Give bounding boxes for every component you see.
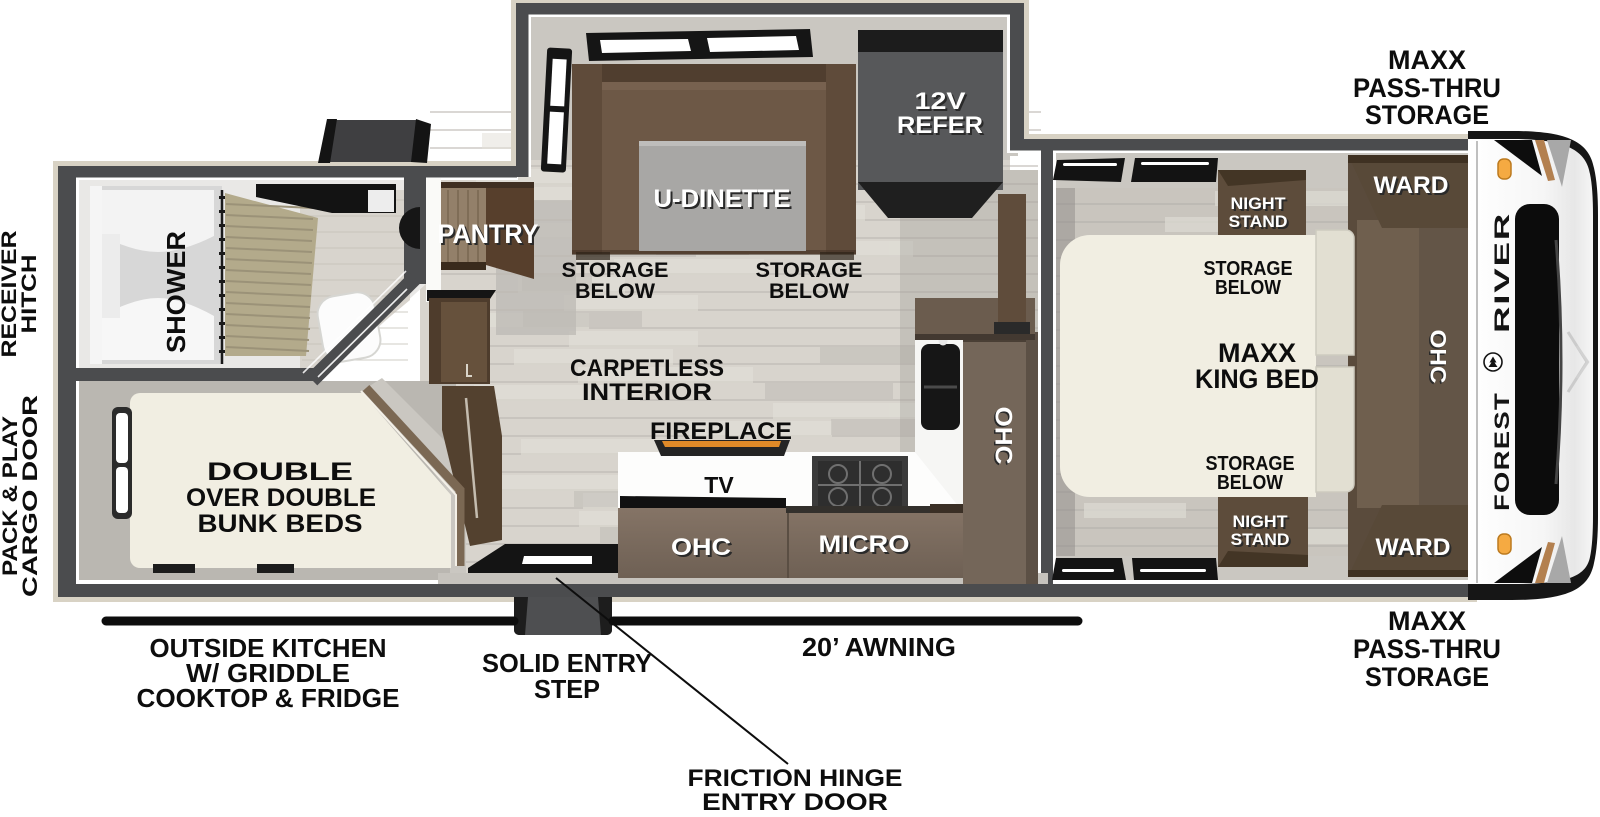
svg-text:20’ AWNING: 20’ AWNING <box>802 632 956 662</box>
svg-text:PASS-THRU: PASS-THRU <box>1353 73 1501 103</box>
svg-text:COOKTOP & FRIDGE: COOKTOP & FRIDGE <box>137 683 400 713</box>
svg-text:FOREST: FOREST <box>1491 392 1514 511</box>
svg-text:OHC: OHC <box>1426 330 1451 384</box>
svg-text:U-DINETTE: U-DINETTE <box>654 185 791 213</box>
svg-text:WARD: WARD <box>1376 534 1451 561</box>
svg-text:STORAGE: STORAGE <box>1365 100 1489 130</box>
svg-text:STAND: STAND <box>1231 530 1290 549</box>
svg-text:BUNK BEDS: BUNK BEDS <box>198 510 363 538</box>
svg-text:OHC: OHC <box>671 534 731 561</box>
svg-text:FIREPLACE: FIREPLACE <box>650 418 792 445</box>
svg-text:REFER: REFER <box>897 112 983 139</box>
svg-text:INTERIOR: INTERIOR <box>582 379 712 406</box>
svg-text:KING BED: KING BED <box>1195 364 1319 394</box>
svg-text:STORAGE: STORAGE <box>1365 662 1489 692</box>
svg-text:BELOW: BELOW <box>769 279 850 303</box>
svg-text:TV: TV <box>704 472 734 498</box>
svg-text:HITCH: HITCH <box>18 255 41 334</box>
svg-text:STAND: STAND <box>1229 212 1288 231</box>
svg-text:FRICTION HINGE: FRICTION HINGE <box>688 765 903 792</box>
svg-text:DOUBLE: DOUBLE <box>207 458 353 486</box>
svg-text:NIGHT: NIGHT <box>1233 512 1289 531</box>
svg-text:CARPETLESS: CARPETLESS <box>570 355 724 382</box>
svg-text:SHOWER: SHOWER <box>161 231 191 353</box>
svg-text:12V: 12V <box>915 88 966 115</box>
svg-text:MAXX: MAXX <box>1388 606 1466 636</box>
svg-text:BELOW: BELOW <box>1215 277 1281 299</box>
svg-text:ENTRY DOOR: ENTRY DOOR <box>702 789 888 816</box>
svg-text:OVER DOUBLE: OVER DOUBLE <box>186 484 376 512</box>
svg-text:MAXX: MAXX <box>1388 45 1466 75</box>
svg-text:PANTRY: PANTRY <box>438 219 539 249</box>
svg-text:NIGHT: NIGHT <box>1231 194 1287 213</box>
svg-text:BELOW: BELOW <box>1217 472 1283 494</box>
svg-text:PASS-THRU: PASS-THRU <box>1353 634 1501 664</box>
svg-text:MICRO: MICRO <box>819 531 910 558</box>
svg-text:CARGO DOOR: CARGO DOOR <box>19 395 42 597</box>
svg-text:RIVER: RIVER <box>1491 212 1514 333</box>
svg-text:BELOW: BELOW <box>575 279 656 303</box>
svg-text:WARD: WARD <box>1374 172 1449 199</box>
svg-text:OHC: OHC <box>990 407 1017 465</box>
svg-text:STEP: STEP <box>534 674 600 704</box>
